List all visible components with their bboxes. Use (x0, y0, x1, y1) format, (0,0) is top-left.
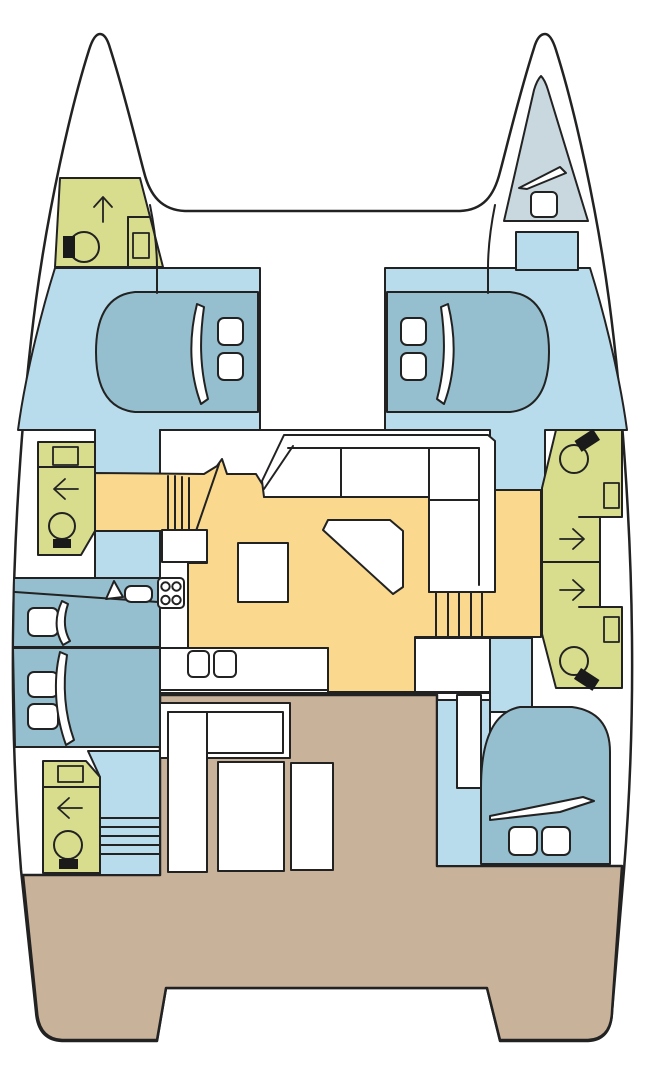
deck-hatch (401, 318, 426, 345)
toilet-tank (59, 859, 78, 869)
berth-pillow (28, 608, 58, 636)
galley-island (238, 543, 288, 602)
toilet-tank (63, 236, 75, 258)
cockpit-bench (218, 762, 284, 871)
galley-counter-forward (162, 530, 207, 562)
deck-hatch (401, 353, 426, 380)
catamaran-floorplan (0, 0, 648, 1080)
sink-icon (188, 651, 209, 677)
berth-pillow (28, 704, 58, 729)
floorplan-canvas (0, 0, 648, 1080)
deck-hatch (531, 192, 557, 217)
deck-hatch (542, 827, 570, 855)
berth-pillow (28, 672, 58, 697)
galley-sink-counter (160, 648, 328, 690)
starboard-stair-landing (415, 638, 490, 692)
starboard-bow-corridor (516, 232, 578, 270)
deck-hatch (509, 827, 537, 855)
toilet-tank (53, 539, 71, 548)
cockpit-bench (291, 763, 333, 870)
port-aft-head (43, 761, 100, 873)
deck-hatch (218, 318, 243, 345)
galley-hull-sink (125, 586, 152, 602)
deck-hatch (218, 353, 243, 380)
sink-icon (214, 651, 236, 677)
starboard-aft-corridor (490, 638, 532, 712)
starboard-aft-doorway (457, 695, 481, 788)
stove-4-burner-icon (158, 578, 184, 608)
